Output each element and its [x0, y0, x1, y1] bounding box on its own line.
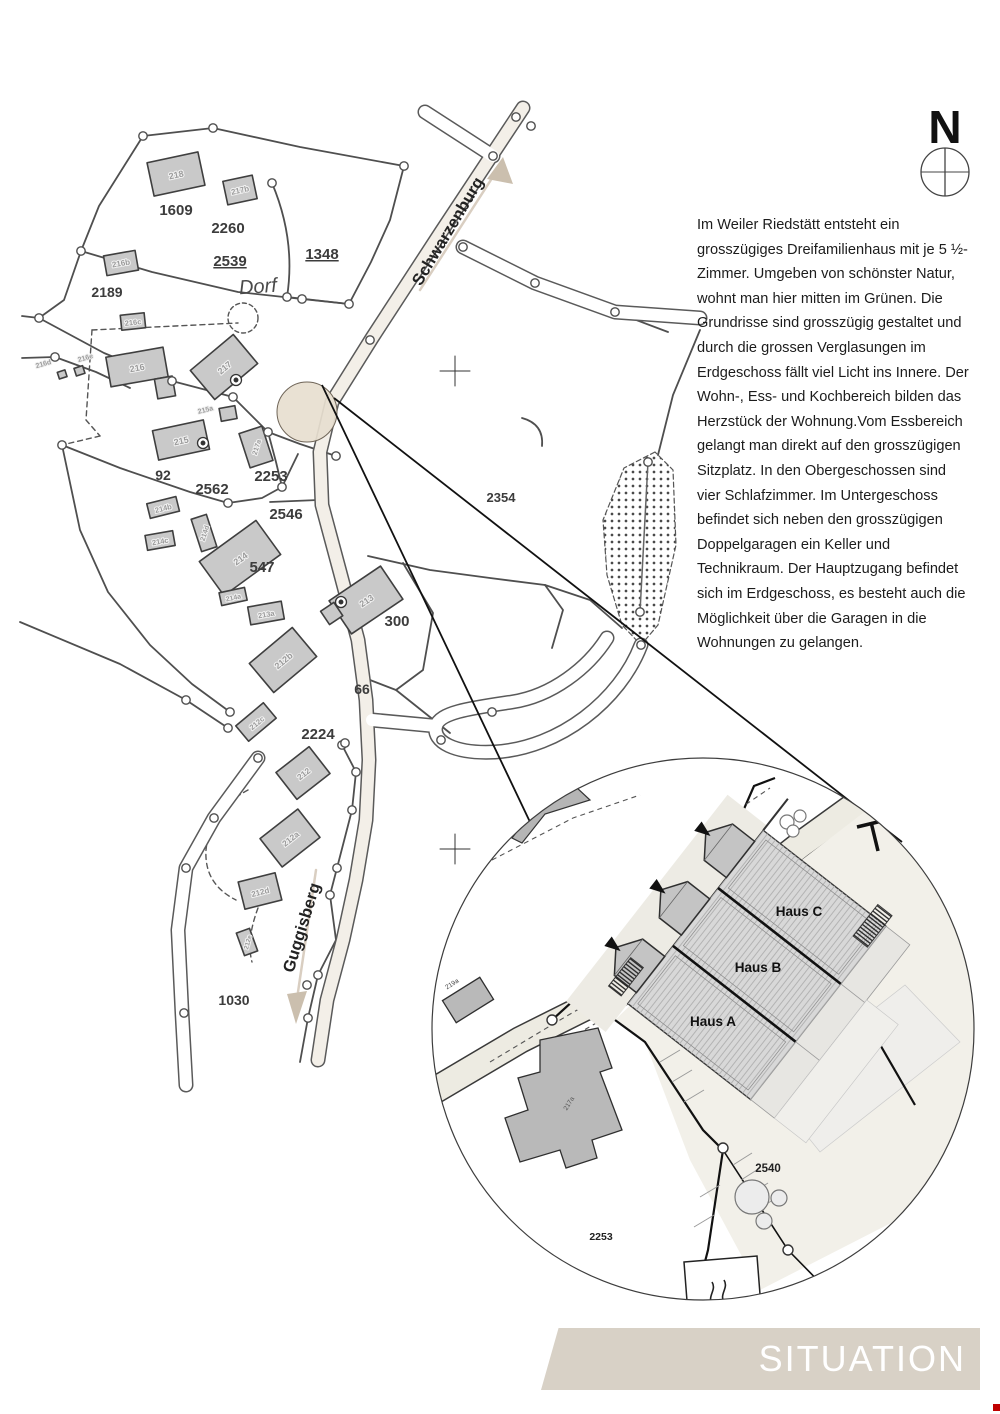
haus-b-label: Haus B: [735, 960, 782, 975]
building-217b: 217b: [223, 175, 257, 205]
parcel-2354: 2354: [487, 490, 517, 505]
building-label: 216c: [124, 317, 142, 328]
building-216d: 216d: [35, 359, 67, 379]
building-label: 216e: [77, 353, 94, 364]
building-214b: 214b: [147, 497, 180, 519]
building-217: 217: [190, 334, 257, 399]
parcel-2546: 2546: [269, 506, 302, 523]
detail-plan: Haus A Haus B Haus C 217a 219a: [432, 754, 975, 1327]
north-label: N: [928, 101, 961, 153]
parcel-92: 92: [155, 467, 171, 483]
detail-parcel-2540: 2540: [755, 1163, 781, 1175]
building-214c: 214c: [145, 531, 175, 551]
area-label-dorf: Dorf: [238, 275, 280, 300]
building-212c: 212c: [236, 703, 276, 741]
building-label: 215a: [197, 405, 214, 416]
creek-symbol: [684, 1256, 762, 1327]
project-description: Im Weiler Riedstätt entsteht ein grosszü…: [697, 213, 973, 656]
north-compass: N: [921, 101, 969, 196]
building-213a: 213a: [248, 601, 285, 625]
parcel-2189: 2189: [91, 284, 122, 300]
survey-cross-icons: [440, 356, 470, 864]
building-label: 216d: [35, 359, 52, 370]
situation-banner: SITUATION: [541, 1328, 980, 1390]
parcel-2562: 2562: [195, 481, 228, 498]
building-212b: 212b: [249, 627, 316, 692]
haus-a-label: Haus A: [690, 1014, 736, 1029]
dashed-boundaries: [62, 303, 258, 962]
building-212d: 212d: [238, 873, 282, 909]
building-216: 216: [106, 346, 176, 406]
building-215a: 215a: [197, 405, 237, 421]
parcel-547: 547: [249, 559, 274, 576]
parcel-2260: 2260: [211, 220, 244, 237]
parcel-66: 66: [354, 681, 370, 697]
building-216b: 216b: [104, 250, 139, 275]
building-216c: 216c: [120, 313, 145, 330]
parcel-1609: 1609: [159, 202, 192, 219]
situation-title: SITUATION: [759, 1338, 966, 1380]
parcel-300: 300: [384, 613, 409, 630]
situation-plan-page: 218 217b 216b 216c 216e 216d 216 217 215…: [0, 0, 1000, 1414]
building-212e: 212e: [236, 928, 257, 955]
parcel-1348: 1348: [305, 246, 338, 263]
building-218: 218: [147, 152, 205, 196]
haus-c-label: Haus C: [776, 904, 823, 919]
parcel-1030: 1030: [218, 992, 249, 1008]
parcel-2253: 2253: [254, 468, 287, 485]
building-212: 212: [276, 747, 330, 800]
building-214d: 214d: [191, 514, 217, 551]
site-highlight-circle: [277, 382, 337, 442]
street-schwarzenburg: Schwarzenburg: [409, 174, 488, 289]
detail-parcel-2253: 2253: [589, 1231, 613, 1243]
parcel-2224: 2224: [301, 726, 335, 743]
page-corner-mark: [993, 1404, 1000, 1411]
parcel-2539: 2539: [213, 253, 246, 270]
building-212a: 212a: [260, 809, 320, 867]
parcel-labels: 1609 2260 2539 1348 2189 92 2562 2253 25…: [91, 202, 516, 1008]
